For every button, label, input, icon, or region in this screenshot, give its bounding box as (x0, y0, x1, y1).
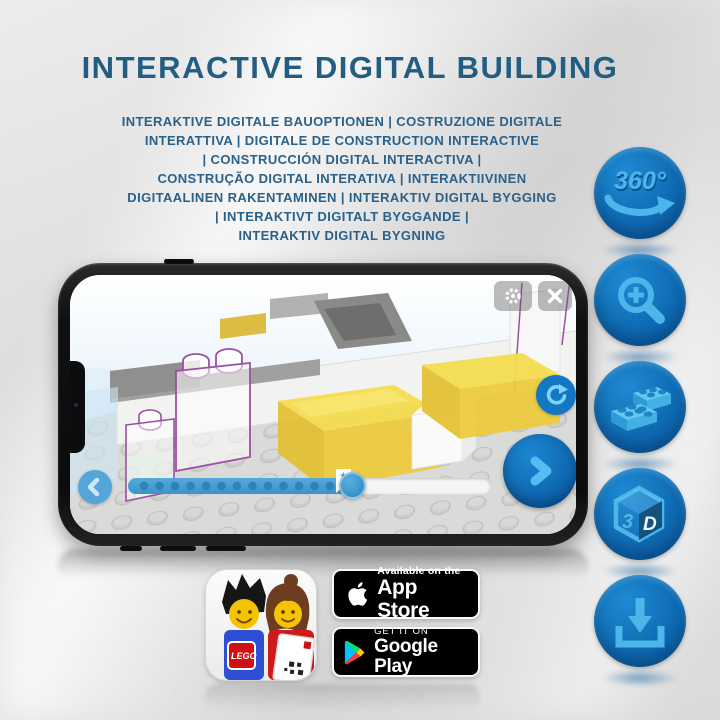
feature-rotate-360: 360° (594, 147, 686, 259)
settings-button[interactable] (494, 281, 532, 311)
rotate-view-button[interactable] (536, 375, 576, 415)
face-3-label: 3 (622, 511, 633, 533)
reflection (601, 669, 679, 687)
download-icon (594, 575, 686, 667)
phone-reflection (58, 549, 588, 583)
chevron-left-icon (84, 476, 106, 498)
front-camera (74, 403, 78, 407)
previous-step-button[interactable] (78, 470, 112, 504)
app-store-label: App Store (377, 577, 468, 621)
feature-bricks (594, 361, 686, 473)
close-button[interactable] (538, 281, 572, 311)
app-store-badge[interactable]: Available on the App Store (332, 569, 480, 619)
progress-fill (128, 478, 356, 494)
chevron-right-icon (523, 454, 557, 488)
phone-screen: ★ (70, 275, 576, 534)
subtitle-line: INTERAKTIVE DIGITALE BAUOPTIONEN | COSTR… (92, 112, 592, 131)
rotate-360-label: 360° (601, 167, 679, 196)
face-d-label: D (643, 514, 657, 535)
phone-power-button (164, 259, 194, 264)
rotate-360-icon: 360° (594, 147, 686, 239)
lego-build-scene (70, 275, 576, 534)
subtitle-line: DIGITAALINEN RAKENTAMINEN | INTERAKTIV D… (92, 188, 592, 207)
subtitle-line: CONSTRUÇÃO DIGITAL INTERATIVA | INTERAKT… (92, 169, 592, 188)
phone-mockup: ★ (58, 263, 588, 546)
close-icon (547, 288, 563, 304)
progress-handle[interactable] (339, 472, 366, 499)
apple-icon (344, 579, 368, 609)
next-step-button[interactable] (503, 434, 576, 508)
phone-notch (70, 361, 85, 453)
zoom-in-icon (594, 254, 686, 346)
subtitle-line: | CONSTRUCCIÓN DIGITAL INTERACTIVA | (92, 150, 592, 169)
subtitle-line: INTERAKTIV DIGITAL BYGNING (92, 226, 592, 245)
subtitle-line: | INTERAKTIVT DIGITALT BYGGANDE | (92, 207, 592, 226)
feature-download (594, 575, 686, 687)
curved-arrow-icon (603, 193, 679, 221)
google-play-badge[interactable]: GET IT ON Google Play (332, 627, 480, 677)
minifigures-illustration: LEGO (206, 570, 316, 680)
3d-view-icon: 3 D (594, 468, 686, 560)
refresh-icon (543, 382, 569, 408)
page-background: INTERACTIVE DIGITAL BUILDING INTERAKTIVE… (0, 0, 720, 720)
subtitle: INTERAKTIVE DIGITALE BAUOPTIONEN | COSTR… (92, 112, 592, 245)
lego-app-icon[interactable]: LEGO (205, 569, 317, 681)
page-title: INTERACTIVE DIGITAL BUILDING (0, 50, 700, 86)
subtitle-line: INTERATTIVA | DIGITALE DE CONSTRUCTION I… (92, 131, 592, 150)
google-play-icon (344, 639, 365, 666)
footer-reflection (205, 684, 480, 710)
google-play-label: Google Play (374, 637, 468, 677)
gear-icon (503, 286, 523, 306)
progress-bar[interactable]: ★ (128, 478, 491, 494)
feature-zoom (594, 254, 686, 366)
feature-3d: 3 D (594, 468, 686, 580)
lego-logo-text: LEGO (231, 651, 257, 661)
lego-bricks-icon (594, 361, 686, 453)
